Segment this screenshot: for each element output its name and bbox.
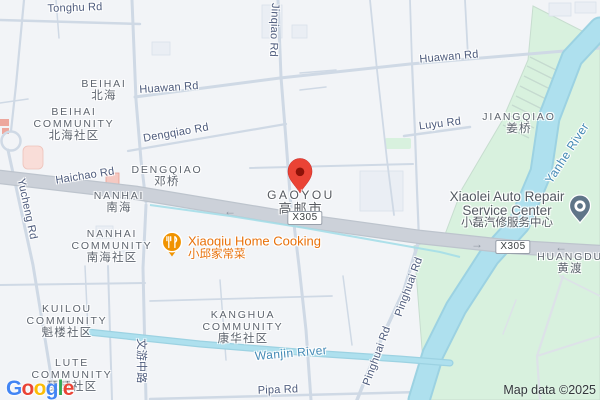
map-canvas[interactable] — [0, 0, 600, 400]
road-north-stub-b — [465, 0, 468, 57]
road-wenyou-middle — [143, 205, 146, 400]
google-logo-letter: o — [22, 377, 34, 400]
road-kuilou-horizontal — [0, 283, 145, 285]
map-attribution: Map data ©2025 — [503, 383, 596, 397]
google-logo[interactable]: Google — [6, 377, 74, 400]
poi-pin-xiaoqiu-restaurant[interactable] — [162, 232, 181, 256]
map-root[interactable]: Tonghu RdHuawan RdHuawan RdJinqiao RdDen… — [0, 0, 600, 400]
roundabout — [2, 132, 21, 151]
road-north-vertical — [132, 0, 146, 202]
google-logo-letter: G — [6, 377, 22, 400]
road-pinghuai-north — [412, 63, 419, 240]
road-north-stub — [410, 0, 412, 63]
google-logo-letter: g — [46, 377, 58, 400]
road-kanghua-vertical-b — [343, 276, 352, 345]
google-logo-letter: e — [63, 377, 74, 400]
road-kanghua-horizontal — [150, 296, 332, 301]
road-pipa — [150, 392, 420, 399]
road-jinqiao-south — [293, 216, 311, 400]
wanjin-river — [88, 332, 450, 363]
road-dengqiao — [128, 124, 286, 151]
road-lane-c — [56, 0, 59, 38]
google-logo-letter: o — [34, 377, 46, 400]
road-pinghuai-south — [357, 240, 419, 400]
destination-pin-gaoyou[interactable] — [288, 159, 312, 194]
road-lane-b — [300, 87, 326, 90]
road-kuilou-stub — [85, 266, 88, 331]
